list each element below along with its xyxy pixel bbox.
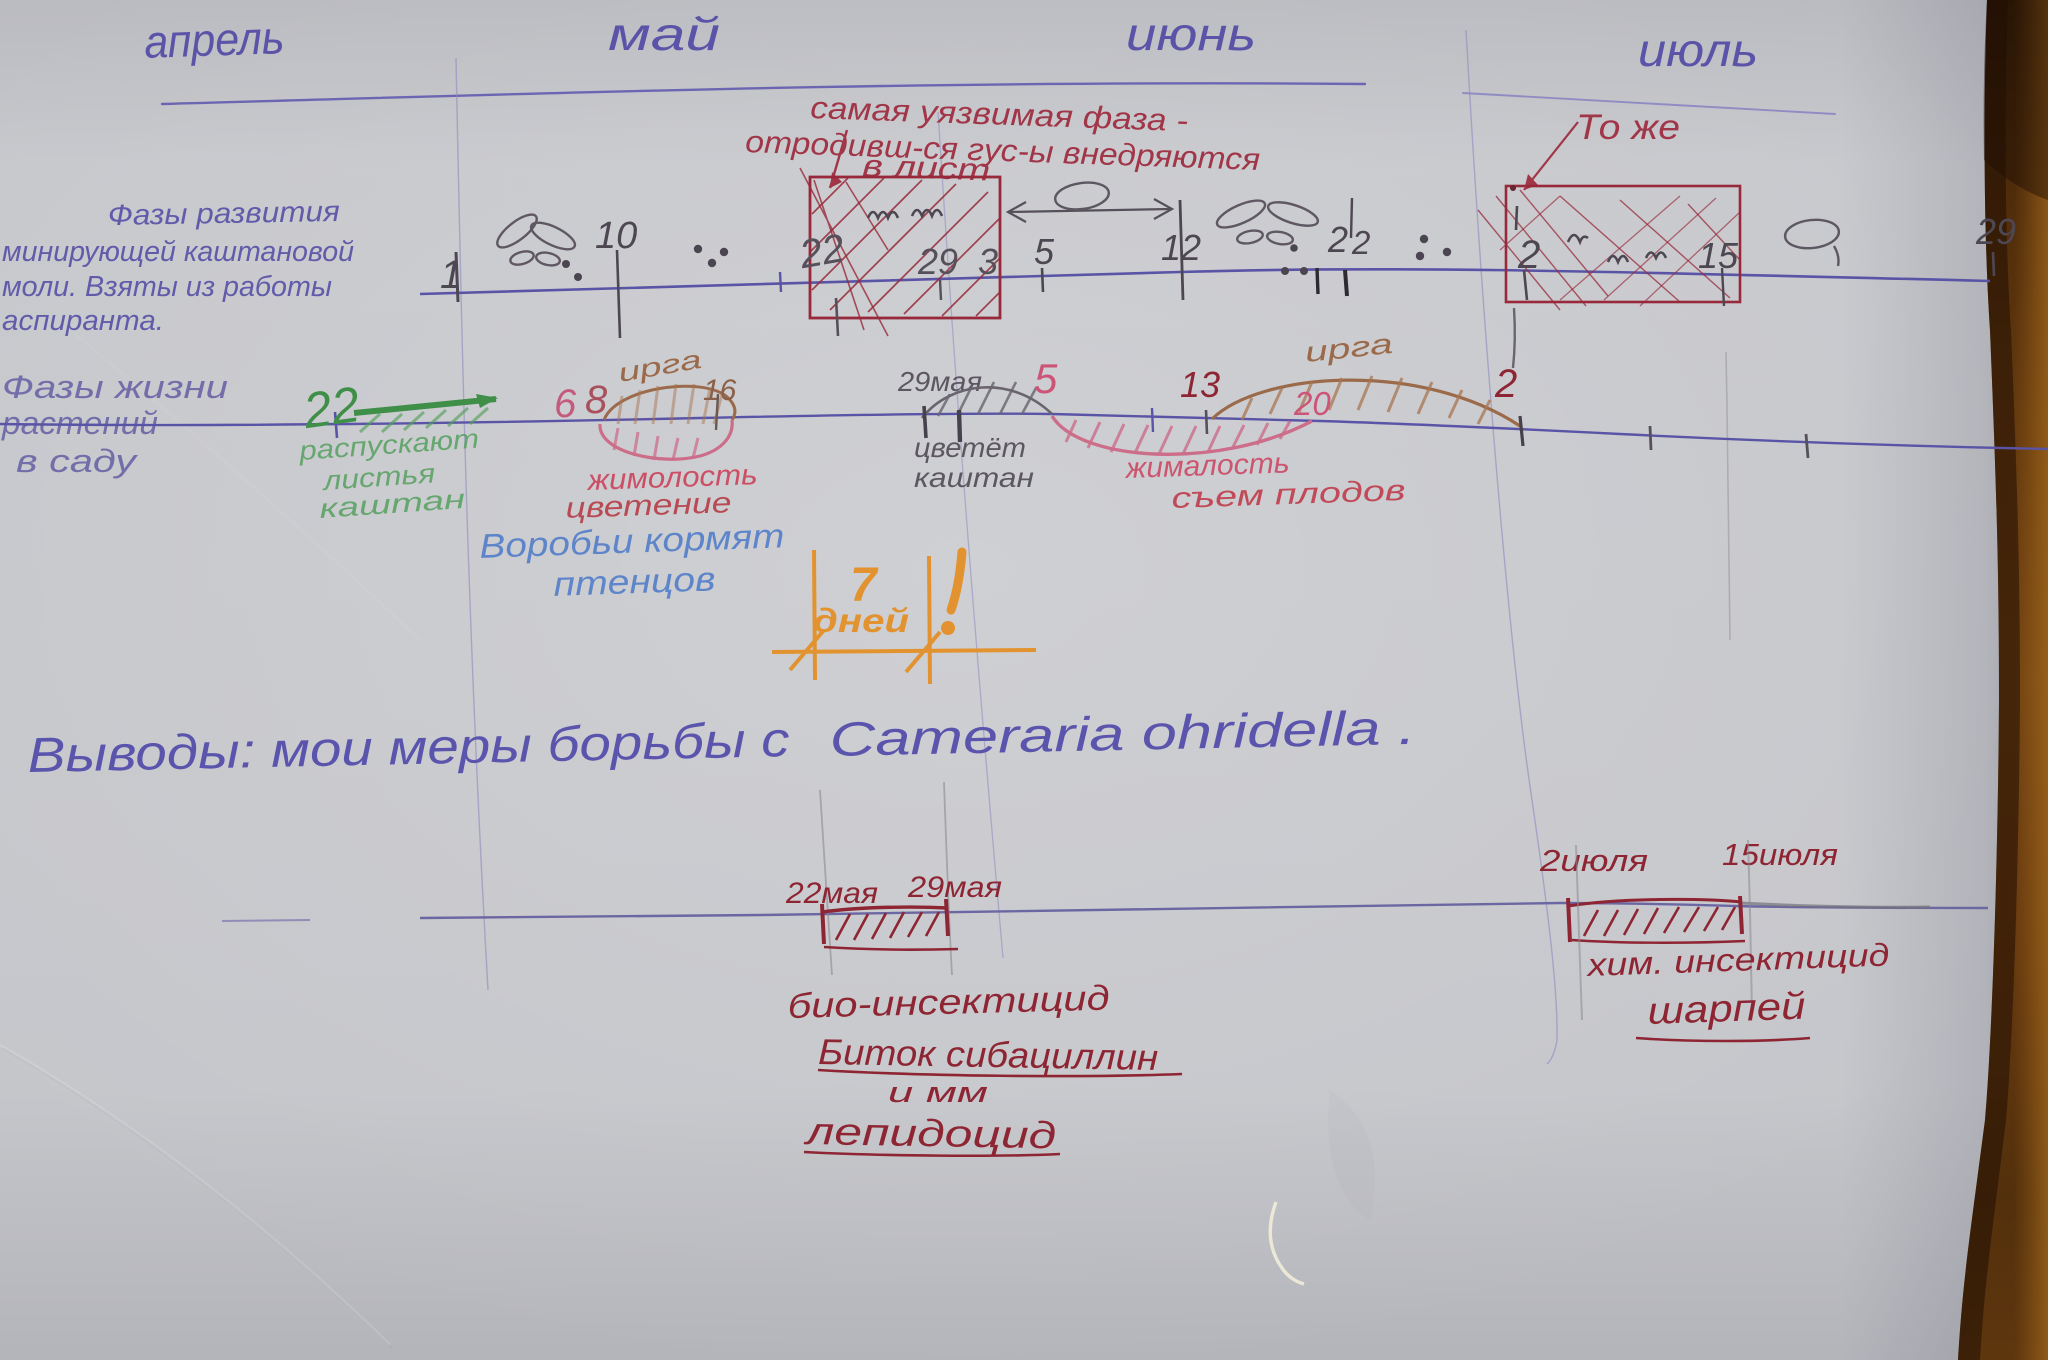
svg-text:Биток сибациллин: Биток сибациллин xyxy=(818,1031,1159,1078)
svg-text:2июля: 2июля xyxy=(1539,843,1648,878)
svg-text:и мм: и мм xyxy=(888,1077,988,1109)
svg-text:2: 2 xyxy=(1327,219,1348,260)
svg-text:15: 15 xyxy=(1698,235,1739,276)
svg-text:2: 2 xyxy=(1517,233,1540,277)
svg-text:5: 5 xyxy=(1034,355,1058,402)
svg-text:22: 22 xyxy=(795,226,847,277)
svg-text:дней: дней xyxy=(813,602,909,639)
svg-text:То же: То же xyxy=(1576,108,1680,147)
svg-text:птенцов: птенцов xyxy=(553,560,716,604)
svg-text:1: 1 xyxy=(440,253,462,297)
svg-text:22: 22 xyxy=(299,376,363,439)
svg-text:6: 6 xyxy=(554,382,577,426)
svg-text:в саду: в саду xyxy=(16,443,139,479)
svg-text:3: 3 xyxy=(978,241,998,282)
svg-text:апрель: апрель xyxy=(143,11,285,68)
svg-text:Фазы жизни: Фазы жизни xyxy=(2,369,228,405)
svg-text:29мая: 29мая xyxy=(907,871,1002,904)
svg-text:каштан: каштан xyxy=(914,462,1034,493)
svg-text:29: 29 xyxy=(917,241,958,282)
svg-text:шарпей: шарпей xyxy=(1647,986,1806,1033)
svg-text:22мая: 22мая xyxy=(785,877,878,910)
svg-text:минирующей каштановой: минирующей каштановой xyxy=(2,236,354,268)
svg-text:15июля: 15июля xyxy=(1722,837,1838,872)
svg-text:лепидоцид: лепидоцид xyxy=(803,1111,1056,1157)
svg-text:13: 13 xyxy=(1180,364,1220,405)
svg-text:2: 2 xyxy=(1351,224,1370,261)
svg-text:20: 20 xyxy=(1293,385,1331,422)
svg-text:июнь: июнь xyxy=(1126,8,1256,60)
svg-text:цветёт: цветёт xyxy=(914,432,1026,463)
svg-text:2: 2 xyxy=(1494,362,1517,406)
svg-text:июль: июль xyxy=(1638,24,1758,76)
svg-text:май: май xyxy=(608,8,720,60)
svg-text:29: 29 xyxy=(1975,211,2016,252)
svg-text:5: 5 xyxy=(1034,231,1055,272)
svg-text:растений: растений xyxy=(1,405,158,441)
svg-text:моли. Взяты из работы: моли. Взяты из работы xyxy=(2,271,332,303)
svg-text:аспиранта.: аспиранта. xyxy=(2,305,164,337)
svg-text:Фазы развития: Фазы развития xyxy=(108,196,341,232)
svg-text:16: 16 xyxy=(703,374,737,407)
